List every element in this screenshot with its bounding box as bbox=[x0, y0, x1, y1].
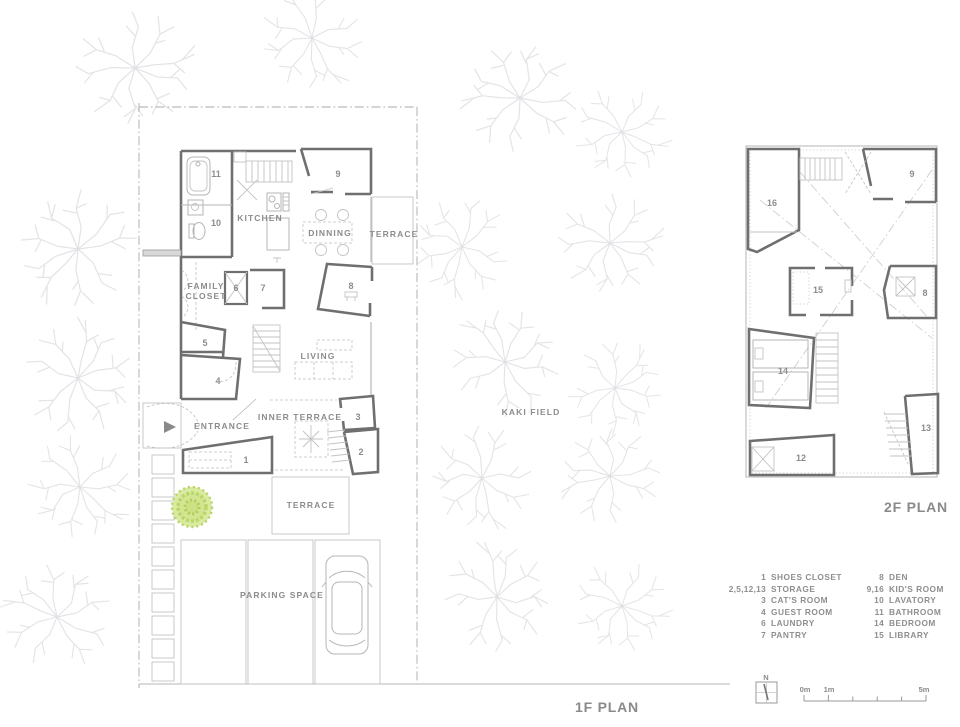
room-number-2f-9: 9 bbox=[909, 169, 914, 179]
room-label-terrace-south: TERRACE bbox=[287, 500, 336, 510]
floor-plan-sheet: KITCHEN DINNING TERRACE FAMILY CLOSET LI… bbox=[0, 0, 960, 727]
room-number-1f-4: 4 bbox=[215, 376, 220, 386]
parking-stall bbox=[181, 540, 246, 684]
legend-label: GUEST ROOM bbox=[771, 607, 833, 617]
field-label-kaki: KAKI FIELD bbox=[502, 407, 561, 417]
room-number-1f-8: 8 bbox=[348, 281, 353, 291]
legend-num: 1 bbox=[761, 572, 766, 582]
legend-label: KID'S ROOM bbox=[889, 584, 944, 594]
toilet-icon bbox=[193, 223, 205, 240]
room-2f-13 bbox=[905, 394, 938, 474]
room-label-closet: CLOSET bbox=[185, 291, 226, 301]
legend-label: PANTRY bbox=[771, 630, 807, 640]
room-number-2f-16: 16 bbox=[767, 198, 777, 208]
room-number-1f-5: 5 bbox=[202, 338, 207, 348]
room-label-living: LIVING bbox=[301, 351, 336, 361]
room-number-2f-13: 13 bbox=[921, 423, 931, 433]
north-needle-icon bbox=[764, 684, 768, 700]
scale-tick-1m: 1m bbox=[824, 685, 835, 694]
room-number-1f-11: 11 bbox=[211, 169, 221, 179]
approach-pad bbox=[143, 403, 181, 448]
legend-num: 9,16 bbox=[867, 584, 884, 594]
room-number-2f-12: 12 bbox=[796, 453, 806, 463]
parking-stall bbox=[248, 540, 313, 684]
room-2f-12 bbox=[750, 435, 834, 475]
room-label-inner-terrace: INNER TERRACE bbox=[258, 412, 342, 422]
room-1f-7 bbox=[250, 270, 284, 308]
legend-label: BEDROOM bbox=[889, 618, 936, 628]
stairs-1f-top bbox=[237, 161, 292, 200]
room-number-1f-7: 7 bbox=[260, 283, 265, 293]
legend-label: STORAGE bbox=[771, 584, 815, 594]
room-number-1f-9: 9 bbox=[335, 169, 340, 179]
plan-2f bbox=[746, 146, 938, 477]
scale-bar: N 0m 1m 5m bbox=[756, 673, 930, 703]
site-trees bbox=[0, 0, 685, 691]
scale-ruler bbox=[804, 695, 926, 701]
stairs-2f-mid bbox=[816, 333, 838, 403]
room-number-1f-3: 3 bbox=[355, 412, 360, 422]
legend-label: LIBRARY bbox=[889, 630, 929, 640]
room-number-1f-6: 6 bbox=[233, 283, 238, 293]
garden-wall bbox=[143, 250, 181, 256]
room-number-1f-1: 1 bbox=[243, 455, 248, 465]
site-1f bbox=[139, 103, 730, 688]
stairs-1f-main bbox=[253, 325, 280, 372]
plan-2f-inner-line bbox=[750, 150, 933, 473]
room-number-1f-10: 10 bbox=[211, 218, 221, 228]
legend-num: 11 bbox=[875, 607, 884, 617]
legend-num: 10 bbox=[874, 595, 884, 605]
legend-num: 7 bbox=[761, 630, 766, 640]
plan-title-1f: 1F PLAN bbox=[575, 699, 639, 715]
room-label-entrance: ENTRANCE bbox=[194, 421, 250, 431]
floor-plan-drawing: KITCHEN DINNING TERRACE FAMILY CLOSET LI… bbox=[0, 0, 960, 727]
washbasin-icon bbox=[188, 200, 203, 215]
legend-num: 8 bbox=[879, 572, 884, 582]
car-outline bbox=[322, 556, 372, 654]
legend-label: BATHROOM bbox=[889, 607, 941, 617]
room-number-1f-2: 2 bbox=[358, 447, 363, 457]
room-2f-9 bbox=[863, 149, 936, 202]
entrance-leader-line bbox=[233, 399, 256, 420]
faucet-icon bbox=[196, 162, 200, 166]
inner-terrace-plant bbox=[295, 421, 328, 457]
room-number-2f-8: 8 bbox=[922, 288, 927, 298]
legend-label: LAUNDRY bbox=[771, 618, 815, 628]
legend-num: 3 bbox=[761, 595, 766, 605]
room-2f-8 bbox=[884, 266, 936, 318]
stepping-stones bbox=[152, 455, 174, 681]
stairs-2f-top bbox=[800, 158, 842, 180]
kitchen-fixtures bbox=[267, 193, 289, 263]
room-1f-1 bbox=[183, 437, 272, 473]
scale-tick-5m: 5m bbox=[919, 685, 930, 694]
legend-num: 2,5,12,13 bbox=[729, 584, 766, 594]
legend-label: SHOES CLOSET bbox=[771, 572, 842, 582]
room-label-family: FAMILY bbox=[188, 281, 225, 291]
room-number-2f-15: 15 bbox=[813, 285, 823, 295]
north-label: N bbox=[763, 673, 768, 682]
room-label-terrace-east: TERRACE bbox=[370, 229, 419, 239]
legend-label: LAVATORY bbox=[889, 595, 936, 605]
legend-num: 14 bbox=[874, 618, 884, 628]
laundry-shelf bbox=[234, 152, 246, 162]
entrance-arrow-icon bbox=[164, 421, 176, 433]
room-label-parking: PARKING SPACE bbox=[240, 590, 324, 600]
legend-num: 4 bbox=[761, 607, 766, 617]
bath-block-wall bbox=[181, 151, 232, 257]
room-label-kitchen: KITCHEN bbox=[237, 213, 282, 223]
room-1f-8 bbox=[318, 264, 372, 316]
scale-tick-0m: 0m bbox=[800, 685, 811, 694]
room-number-2f-14: 14 bbox=[778, 366, 788, 376]
legend-label: CAT'S ROOM bbox=[771, 595, 828, 605]
parking-stall bbox=[315, 540, 380, 684]
legend-label: DEN bbox=[889, 572, 908, 582]
legend-num: 6 bbox=[761, 618, 766, 628]
legend-num: 15 bbox=[874, 630, 884, 640]
room-label-dinning: DINNING bbox=[308, 228, 352, 238]
plan-title-2f: 2F PLAN bbox=[884, 499, 948, 515]
kaki-tree-icon bbox=[172, 487, 212, 527]
house-1f bbox=[143, 149, 378, 474]
legend: 1 SHOES CLOSET 2,5,12,13 STORAGE 3 CAT'S… bbox=[729, 572, 944, 640]
